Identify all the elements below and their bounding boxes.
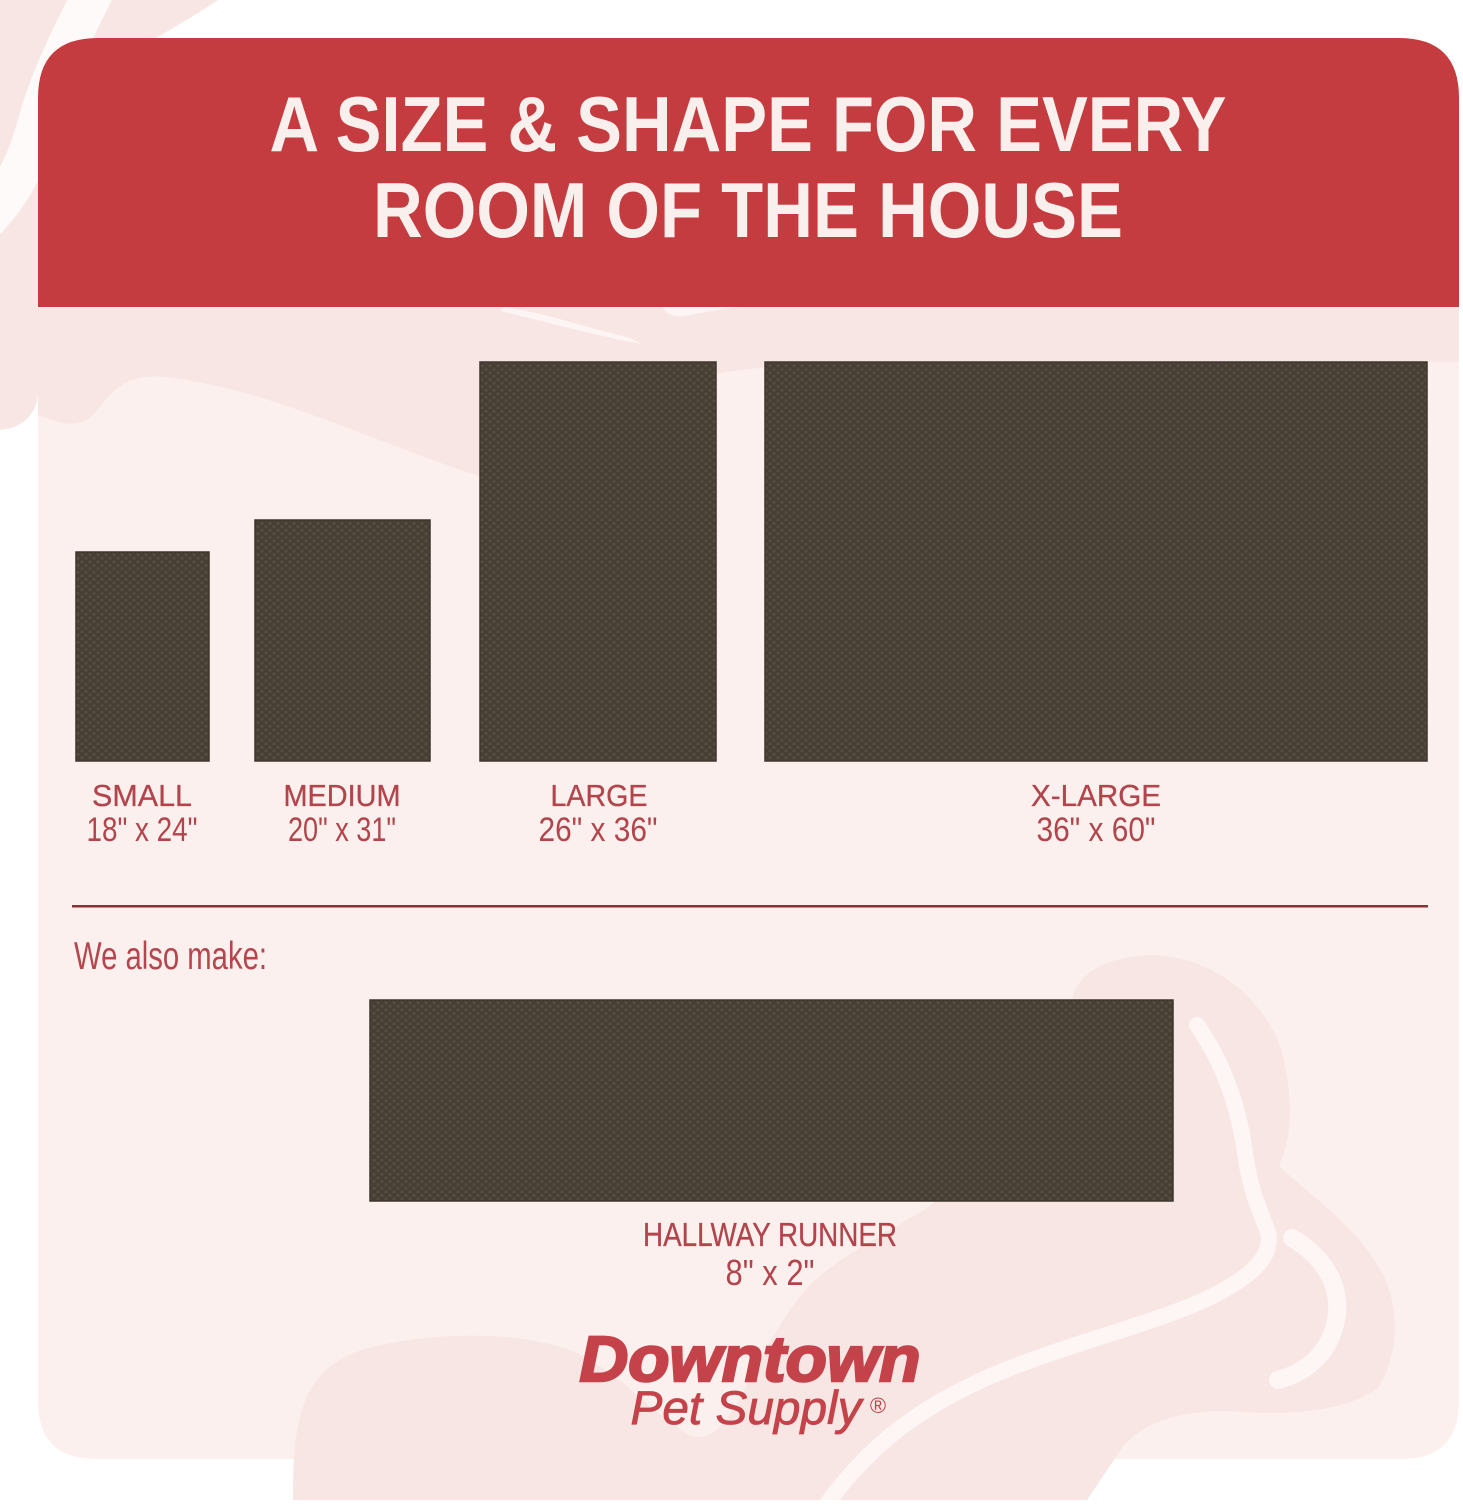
svg-text:20" x 31": 20" x 31" bbox=[288, 811, 396, 849]
svg-text:36" x 60": 36" x 60" bbox=[1037, 811, 1156, 849]
svg-text:®: ® bbox=[870, 1393, 886, 1418]
svg-text:X-LARGE: X-LARGE bbox=[1031, 778, 1161, 813]
svg-text:A SIZE & SHAPE FOR EVERY: A SIZE & SHAPE FOR EVERY bbox=[270, 80, 1227, 168]
svg-text:LARGE: LARGE bbox=[551, 778, 648, 813]
svg-text:8" x 2": 8" x 2" bbox=[726, 1252, 815, 1293]
svg-text:ROOM OF THE HOUSE: ROOM OF THE HOUSE bbox=[373, 166, 1123, 254]
svg-text:We also make:: We also make: bbox=[74, 935, 267, 978]
svg-text:26" x 36": 26" x 36" bbox=[539, 811, 658, 849]
svg-text:HALLWAY RUNNER: HALLWAY RUNNER bbox=[643, 1216, 897, 1253]
svg-text:18" x 24": 18" x 24" bbox=[87, 811, 198, 849]
svg-text:MEDIUM: MEDIUM bbox=[284, 778, 401, 813]
svg-text:Pet Supply: Pet Supply bbox=[631, 1381, 865, 1434]
svg-text:SMALL: SMALL bbox=[92, 778, 192, 813]
